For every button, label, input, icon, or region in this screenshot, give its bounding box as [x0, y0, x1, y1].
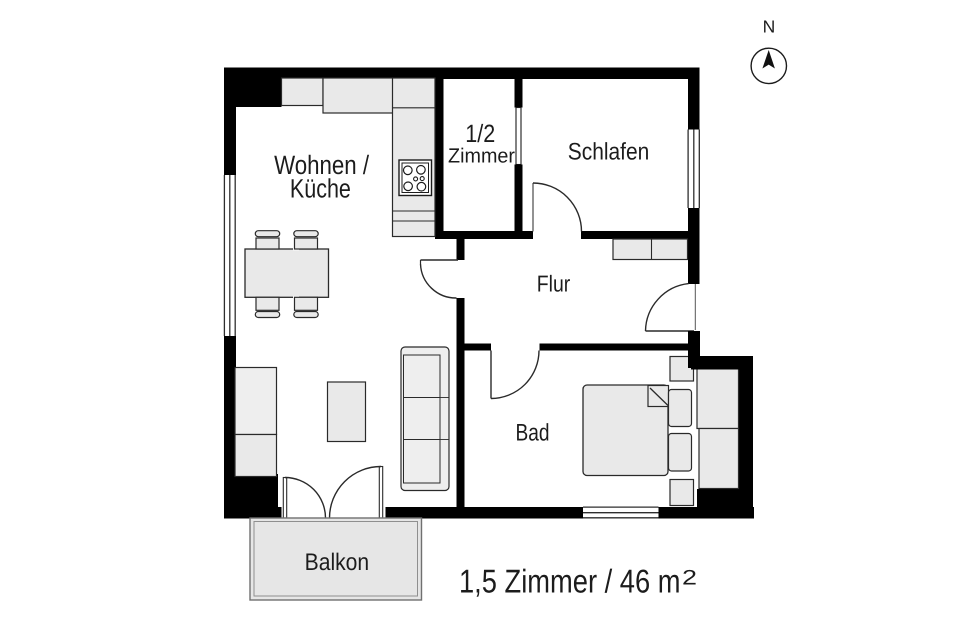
svg-text:2: 2: [682, 567, 697, 590]
svg-text:Schlafen: Schlafen: [568, 139, 650, 166]
svg-text:Küche: Küche: [290, 174, 351, 204]
svg-text:1,5 Zimmer / 46 m: 1,5 Zimmer / 46 m: [459, 562, 681, 599]
svg-text:Balkon: Balkon: [305, 549, 370, 576]
svg-text:Zimmer: Zimmer: [448, 144, 515, 167]
svg-text:N: N: [763, 17, 776, 37]
svg-text:Bad: Bad: [516, 419, 550, 446]
svg-text:Flur: Flur: [537, 270, 571, 296]
